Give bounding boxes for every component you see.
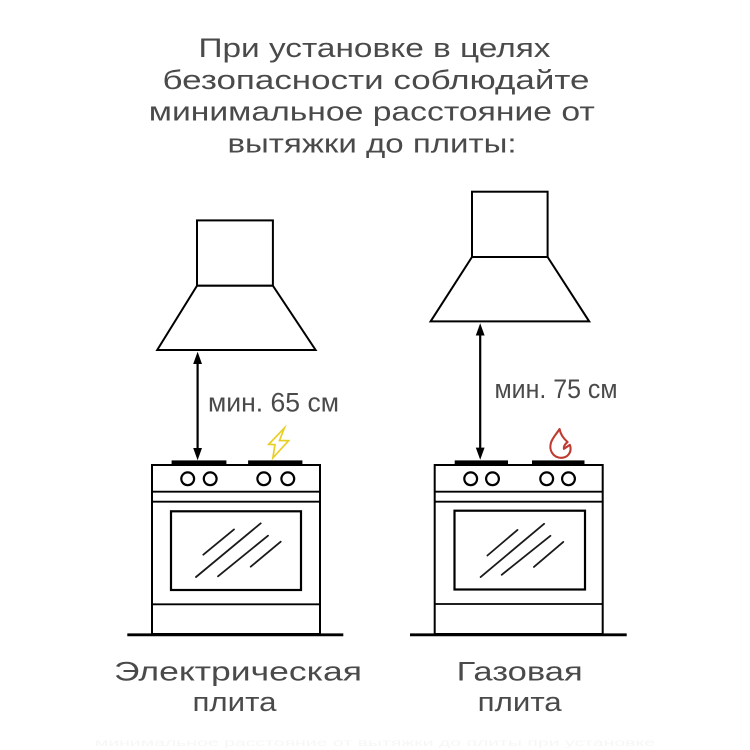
svg-text:Электрическая: Электрическая	[114, 657, 362, 687]
svg-text:безопасности соблюдайте: безопасности соблюдайте	[163, 65, 590, 95]
svg-text:минимальное расстояние от: минимальное расстояние от	[149, 97, 595, 127]
svg-text:мин. 75 см: мин. 75 см	[495, 374, 618, 404]
svg-text:При установке в целях: При установке в целях	[199, 33, 552, 63]
svg-text:минимальное расстояние от вытя: минимальное расстояние от вытяжки до пли…	[95, 737, 655, 749]
svg-text:плита: плита	[193, 687, 278, 717]
svg-text:мин. 65 см: мин. 65 см	[208, 387, 339, 417]
svg-text:Газовая: Газовая	[457, 656, 583, 686]
svg-text:плита: плита	[478, 687, 563, 717]
svg-text:вытяжки до плиты:: вытяжки до плиты:	[228, 128, 517, 158]
